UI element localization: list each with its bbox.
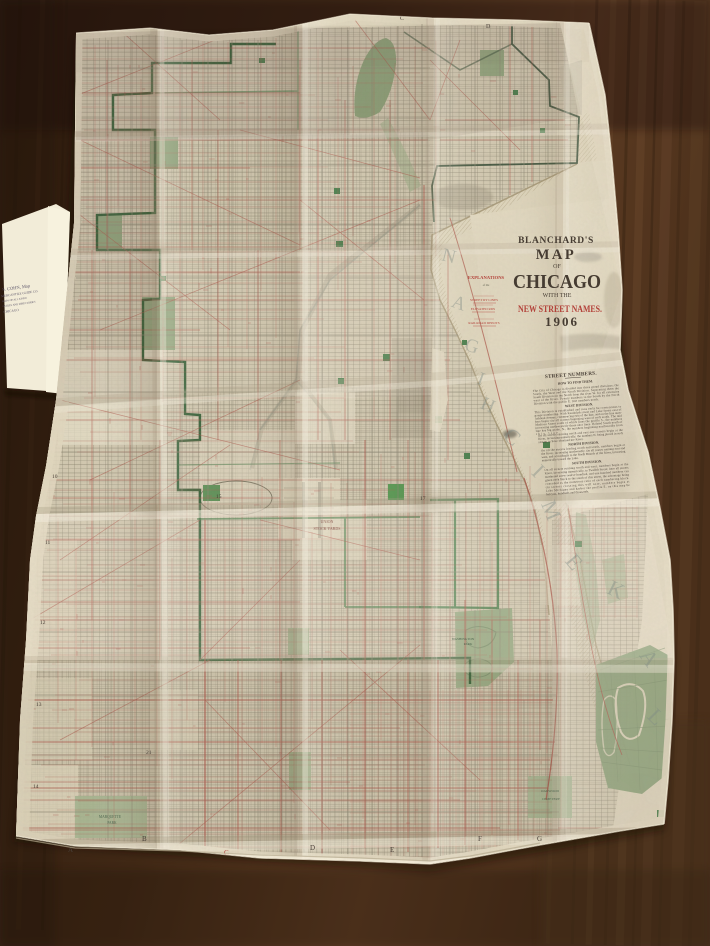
svg-text:E: E <box>390 846 394 854</box>
svg-text:12: 12 <box>40 620 46 626</box>
svg-text:NEW STREET NAMES.: NEW STREET NAMES. <box>518 304 602 314</box>
svg-text:UNION: UNION <box>321 519 334 524</box>
svg-text:17: 17 <box>420 496 426 502</box>
svg-text:B: B <box>142 835 147 843</box>
svg-text:MAP: MAP <box>536 247 577 263</box>
svg-text:13: 13 <box>36 702 42 708</box>
svg-text:BLANCHARD'S: BLANCHARD'S <box>518 236 594 246</box>
svg-text:CEMETERY: CEMETERY <box>542 797 561 801</box>
svg-text:11: 11 <box>45 540 51 546</box>
svg-text:PARK: PARK <box>464 642 473 646</box>
svg-text:STOCK YARDS: STOCK YARDS <box>313 526 340 531</box>
svg-text:CHICAGO: CHICAGO <box>513 271 601 293</box>
svg-text:EXPLANATIONS: EXPLANATIONS <box>468 275 505 280</box>
svg-text:D: D <box>310 844 315 852</box>
svg-text:STREET RY LINES: STREET RY LINES <box>470 298 498 302</box>
svg-text:F: F <box>478 835 482 843</box>
svg-text:1906: 1906 <box>545 314 579 329</box>
svg-text:OF: OF <box>553 264 561 270</box>
svg-text:MARQUETTE: MARQUETTE <box>99 815 122 819</box>
svg-text:PARK: PARK <box>107 821 117 825</box>
svg-text:WITH THE: WITH THE <box>543 293 572 299</box>
svg-text:WASHINGTON: WASHINGTON <box>452 637 475 641</box>
svg-text:21: 21 <box>146 750 152 756</box>
svg-text:15: 15 <box>216 494 222 500</box>
svg-text:ELEVATED RDS: ELEVATED RDS <box>471 307 495 311</box>
svg-text:OAKWOOD: OAKWOOD <box>541 789 559 793</box>
svg-text:of the: of the <box>483 284 490 287</box>
svg-text:10: 10 <box>52 474 58 480</box>
svg-text:G: G <box>537 835 542 843</box>
svg-text:D: D <box>486 24 491 30</box>
svg-text:RAILROAD DEPOTS: RAILROAD DEPOTS <box>468 321 499 325</box>
svg-text:14: 14 <box>33 784 39 790</box>
